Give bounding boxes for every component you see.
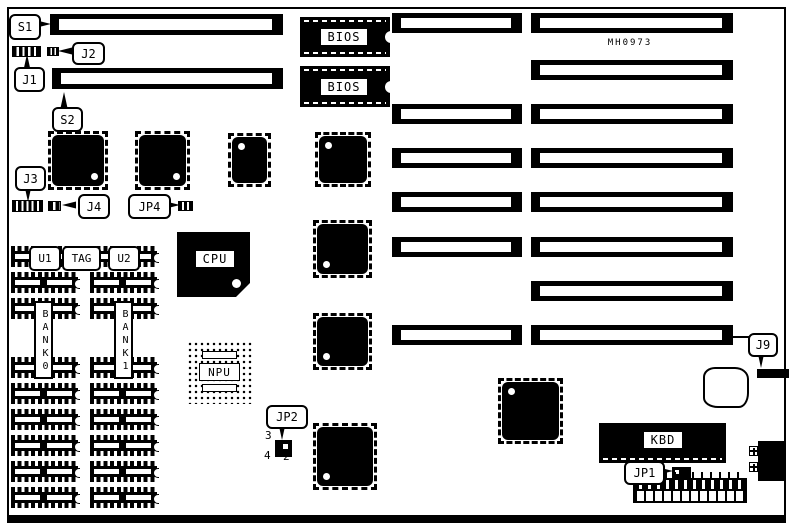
pin1-dot [173,173,180,180]
pin1-dot [508,388,515,395]
dram-dip-socket [11,383,78,404]
npu-socket: NPU [187,341,252,404]
expansion-slot [392,13,522,33]
j9-leader-line [733,336,749,338]
bios-pin-row [304,52,386,54]
dip-notch [385,81,392,93]
jp2-open-pad [282,443,289,450]
jp4-callout: JP4 [128,194,171,219]
kbd-pin-row [603,458,722,460]
board-id-text: MH0973 [598,38,662,48]
dram-dip-socket [11,409,78,430]
qfp-chip [228,133,271,187]
qfp-chip [498,378,563,444]
dram-dip-socket [90,487,157,508]
din-mount-stud [749,446,758,456]
pin1-dot [91,173,98,180]
jp1-callout: JP1 [624,461,665,485]
bank1-label: BANK1 [114,301,133,379]
bios-chip-bottom: BIOS [300,66,390,107]
expansion-slot [50,14,283,35]
npu-label: NPU [199,363,240,381]
bank0-label: BANK0 [34,301,53,379]
motherboard-diagram: MH0973 BIOS BIOS CPU NPU KBD U1 TAG U2 B… [0,0,791,527]
dram-dip-socket [11,487,78,508]
bios-label: BIOS [321,29,367,45]
tag-label: TAG [62,246,101,271]
j9-callout: J9 [748,333,778,357]
bios-chip-top: BIOS [300,17,390,57]
qfp-chip [135,131,190,190]
expansion-slot [531,281,733,301]
expansion-slot [531,192,733,212]
kbd-chip: KBD [599,423,726,463]
power-pin-row-bottom [635,489,745,501]
j4-callout: J4 [78,194,110,219]
qfp-chip [313,423,377,490]
j9-jumper [757,369,789,378]
cpu-chip: CPU [177,232,250,297]
expansion-slot [531,237,733,257]
qfp-chip [315,132,371,187]
expansion-slot [531,13,733,33]
expansion-slot [531,104,733,124]
pin1-dot [323,261,330,268]
battery-outline [703,367,749,408]
bios-pin-row [304,102,386,104]
expansion-slot [392,192,522,212]
expansion-slot [531,148,733,168]
jp4-jumper [178,201,193,211]
j1-callout: J1 [14,67,45,92]
dram-dip-socket [90,461,157,482]
u1-label: U1 [29,246,61,271]
dram-dip-socket [90,272,157,293]
expansion-slot [52,68,283,89]
qfp-chip [48,131,108,190]
j4-jumper [48,201,61,211]
keyboard-din-connector [758,441,786,481]
j1-jumper [12,46,41,57]
bios-label: BIOS [321,79,367,95]
dram-dip-socket [11,461,78,482]
pin1-dot [323,473,330,480]
expansion-slot [531,60,733,80]
pin1-dot [238,143,245,150]
jp2-pin3-number: 3 [265,429,272,442]
dram-dip-socket [11,272,78,293]
qfp-chip [313,313,372,370]
npu-slot-bar [202,384,237,392]
s2-callout: S2 [52,107,83,132]
j2-jumper [47,47,59,56]
jp2-callout: JP2 [266,405,308,429]
qfp-chip [313,220,372,278]
expansion-slot [392,325,522,345]
bios-pin-row [304,20,386,22]
u2-label: U2 [108,246,140,271]
dram-dip-socket [11,435,78,456]
dram-dip-socket [90,409,157,430]
j2-callout: J2 [72,42,105,65]
jp2-pin4-number: 4 [264,449,271,462]
pin1-dot [325,142,332,149]
expansion-slot [392,104,522,124]
dip-notch [385,31,392,43]
din-mount-stud [749,462,758,472]
pin1-dot [232,279,241,288]
expansion-slot [531,325,733,345]
dram-dip-socket [90,383,157,404]
expansion-slot [392,148,522,168]
pin1-dot [323,353,330,360]
bios-pin-row [304,69,386,71]
cpu-label: CPU [196,251,234,267]
j3-callout: J3 [15,166,46,191]
jp2-pin2-number: 2 [283,450,290,463]
kbd-label: KBD [644,432,682,448]
j3-jumper [12,200,43,212]
expansion-slot [392,237,522,257]
dram-dip-socket [90,435,157,456]
s1-callout: S1 [9,14,41,40]
npu-slot-bar [202,351,237,359]
